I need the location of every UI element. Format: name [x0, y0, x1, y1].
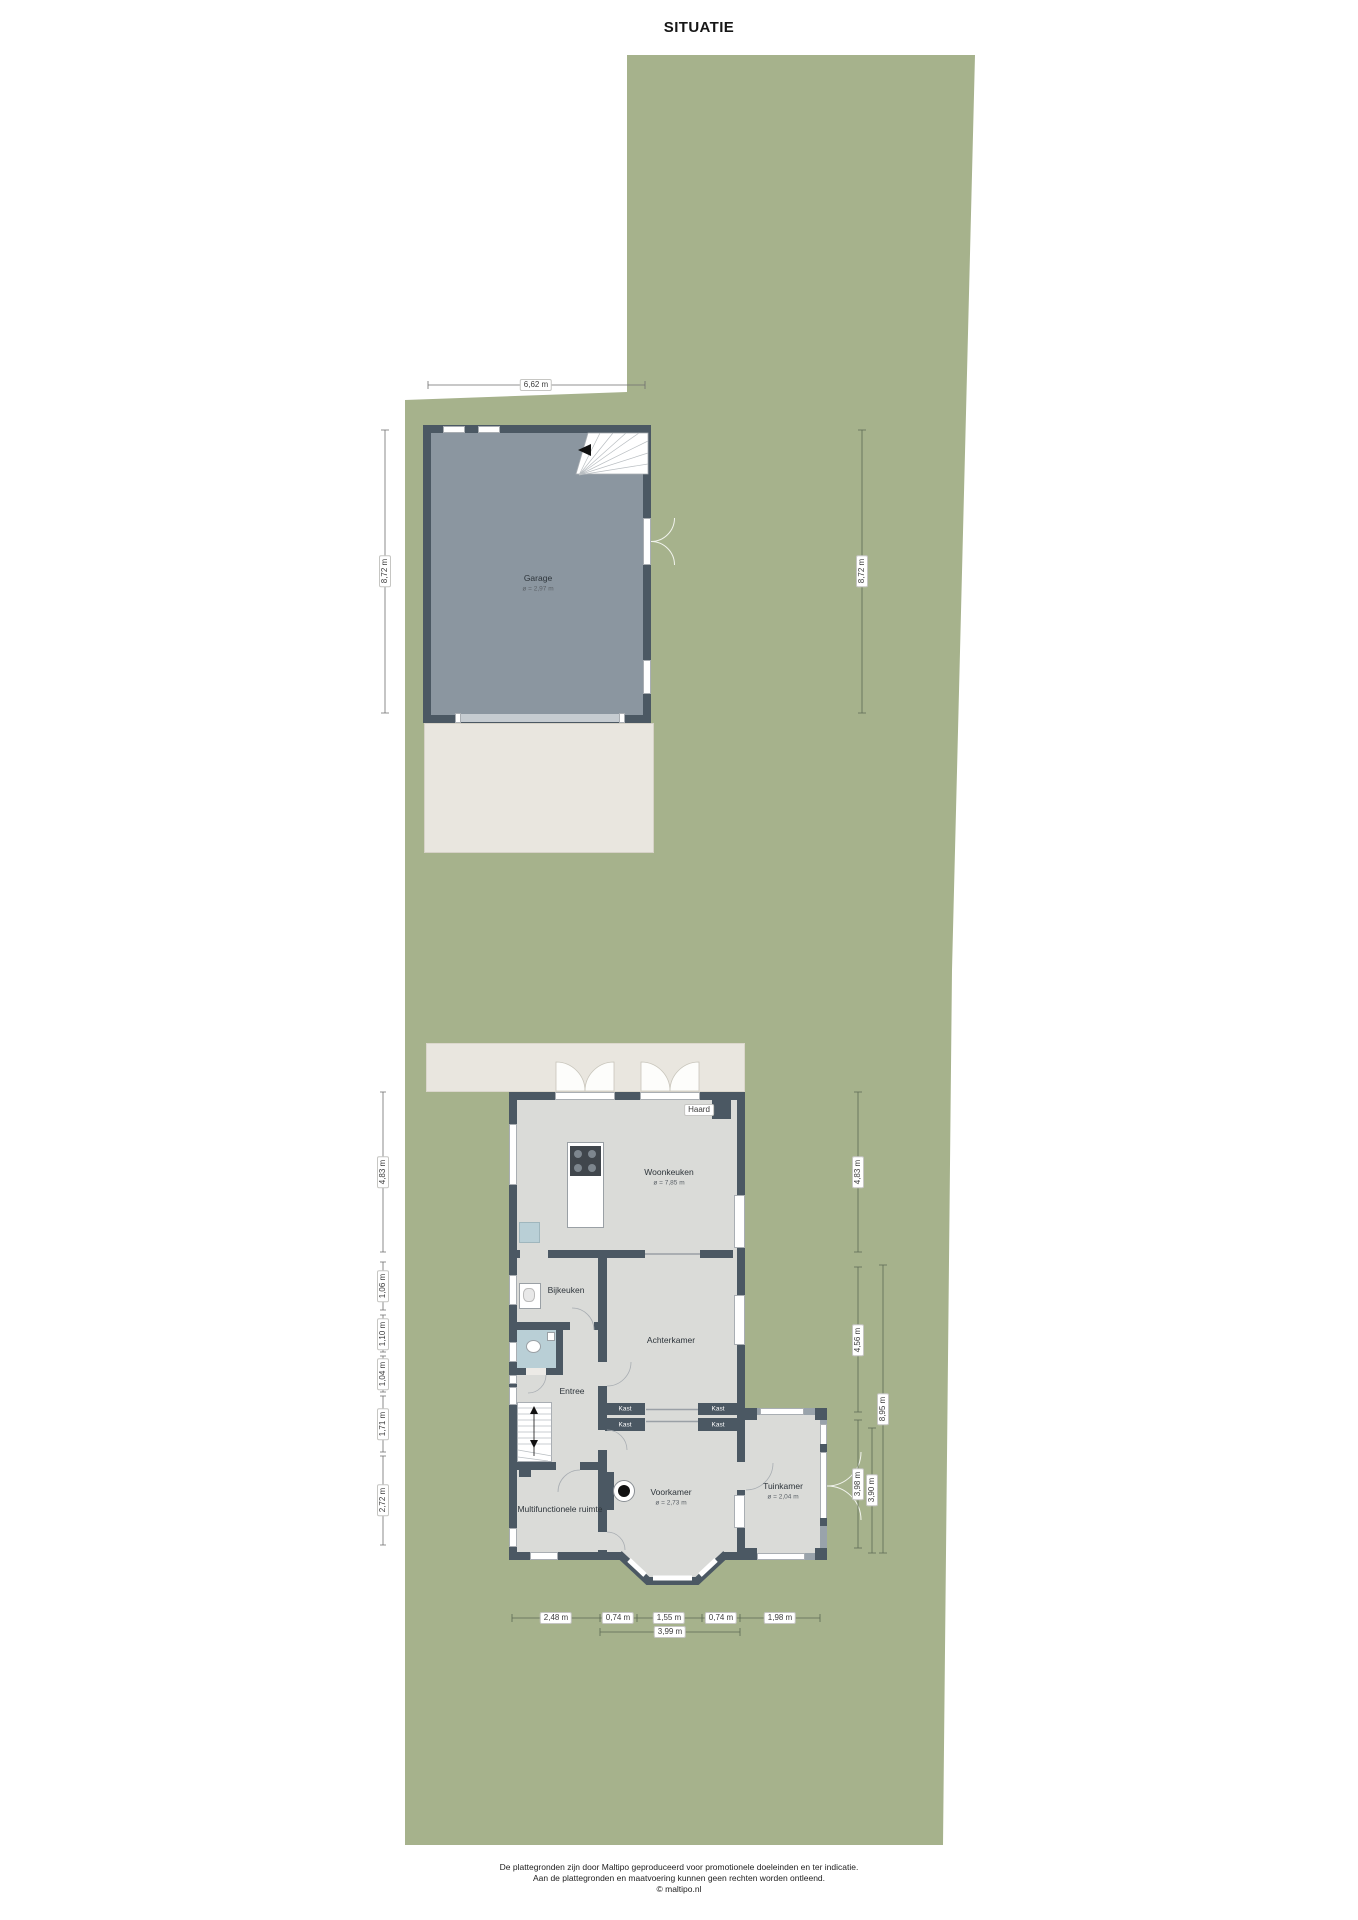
dim-label: 8,95 m: [877, 1393, 889, 1425]
door-swing: [528, 1375, 546, 1393]
room-label-tuinkamer: Tuinkamer: [763, 1481, 803, 1491]
dim-label: 0,74 m: [602, 1612, 634, 1624]
dim-label: 1,55 m: [653, 1612, 685, 1624]
door-swing: [607, 1362, 631, 1386]
dim-label: 1,10 m: [377, 1318, 389, 1350]
room-label-garage: Garage: [524, 573, 552, 583]
door-swing: [607, 1430, 627, 1450]
door-swing: [556, 1062, 585, 1091]
closet-label: Kast: [711, 1422, 724, 1429]
door-swing: [607, 1532, 625, 1550]
room-label-multifunctionele-ruimte: Multifunctionele ruimte: [517, 1504, 603, 1514]
footer-line: © maltipo.nl: [0, 1884, 1358, 1895]
room-size-tuinkamer: ø = 2,04 m: [767, 1494, 798, 1501]
dim-label: 4,83 m: [377, 1156, 389, 1188]
dim-label: 1,04 m: [377, 1358, 389, 1390]
room-label-entree: Entree: [559, 1386, 584, 1396]
dim-label: 1,98 m: [764, 1612, 796, 1624]
dim-label: 6,62 m: [520, 379, 552, 391]
dim-label: 3,99 m: [654, 1626, 686, 1638]
door-swing: [572, 1308, 594, 1330]
fireplace-label: Haard: [684, 1104, 714, 1116]
stair-treads: [518, 1408, 552, 1461]
door-swing: [558, 1470, 580, 1492]
room-size-woonkeuken: ø = 7,85 m: [653, 1180, 684, 1187]
dim-label: 3,90 m: [866, 1474, 878, 1506]
stairs-arrow-up: [530, 1406, 538, 1414]
dim-label: 1,06 m: [377, 1270, 389, 1302]
dim-label: 8,72 m: [856, 555, 868, 587]
door-swing: [670, 1062, 699, 1091]
dim-label: 4,56 m: [852, 1324, 864, 1356]
room-label-woonkeuken: Woonkeuken: [644, 1167, 693, 1177]
dim-label: 4,83 m: [852, 1156, 864, 1188]
room-size-voorkamer: ø = 2,73 m: [655, 1500, 686, 1507]
dim-label: 0,74 m: [705, 1612, 737, 1624]
closet-label: Kast: [618, 1406, 631, 1413]
page-title: SITUATIE: [664, 19, 734, 36]
closet-label: Kast: [711, 1406, 724, 1413]
dim-label: 1,71 m: [377, 1408, 389, 1440]
footer-line: Aan de plattegronden en maatvoering kunn…: [0, 1873, 1358, 1884]
room-label-bijkeuken: Bijkeuken: [548, 1285, 585, 1295]
door-swing: [585, 1062, 614, 1091]
footer-disclaimer: De plattegronden zijn door Maltipo gepro…: [0, 1862, 1358, 1895]
situatie-plan: SITUATIE Garage ø = 2,97 m: [0, 0, 1358, 1920]
dim-label: 2,48 m: [540, 1612, 572, 1624]
closet-label: Kast: [618, 1422, 631, 1429]
dim-label: 3,98 m: [852, 1468, 864, 1500]
dim-label: 8,72 m: [379, 555, 391, 587]
door-swing: [641, 1062, 670, 1091]
room-label-achterkamer: Achterkamer: [647, 1335, 695, 1345]
door-swing: [651, 518, 675, 565]
room-label-voorkamer: Voorkamer: [650, 1487, 691, 1497]
room-size-garage: ø = 2,97 m: [522, 586, 553, 593]
dim-label: 2,72 m: [377, 1484, 389, 1516]
footer-line: De plattegronden zijn door Maltipo gepro…: [0, 1862, 1358, 1873]
